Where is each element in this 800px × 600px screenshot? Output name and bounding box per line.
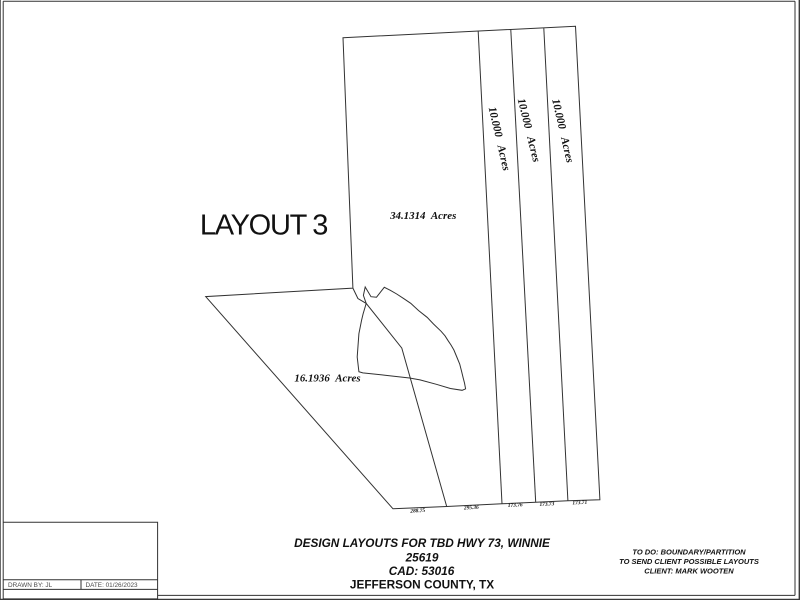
svg-text:CLIENT: MARK WOOTEN: CLIENT: MARK WOOTEN	[644, 567, 734, 576]
svg-text:TO DO: BOUNDARY/PARTITION: TO DO: BOUNDARY/PARTITION	[632, 548, 746, 557]
svg-text:34.1314 Acres: 34.1314 Acres	[389, 210, 456, 222]
svg-text:16.1936 Acres: 16.1936 Acres	[294, 373, 360, 385]
svg-text:LAYOUT 3: LAYOUT 3	[200, 210, 327, 242]
svg-text:173.76: 173.76	[508, 502, 523, 509]
svg-text:DATE: 01/26/2023: DATE: 01/26/2023	[86, 582, 139, 589]
svg-text:CAD: 53016: CAD: 53016	[389, 564, 455, 578]
svg-text:TO SEND CLIENT POSSIBLE LAYOUT: TO SEND CLIENT POSSIBLE LAYOUTS	[619, 557, 759, 566]
svg-text:JEFFERSON COUNTY, TX: JEFFERSON COUNTY, TX	[350, 577, 494, 591]
svg-text:173.71: 173.71	[572, 500, 587, 507]
svg-text:295.36: 295.36	[463, 505, 479, 512]
svg-text:173.73: 173.73	[539, 501, 554, 508]
svg-text:25619: 25619	[405, 550, 439, 564]
svg-text:DRAWN BY: JL: DRAWN BY: JL	[8, 582, 53, 589]
svg-text:288.75: 288.75	[409, 508, 425, 515]
svg-text:DESIGN LAYOUTS FOR TBD HWY 73,: DESIGN LAYOUTS FOR TBD HWY 73, WINNIE	[294, 536, 551, 550]
